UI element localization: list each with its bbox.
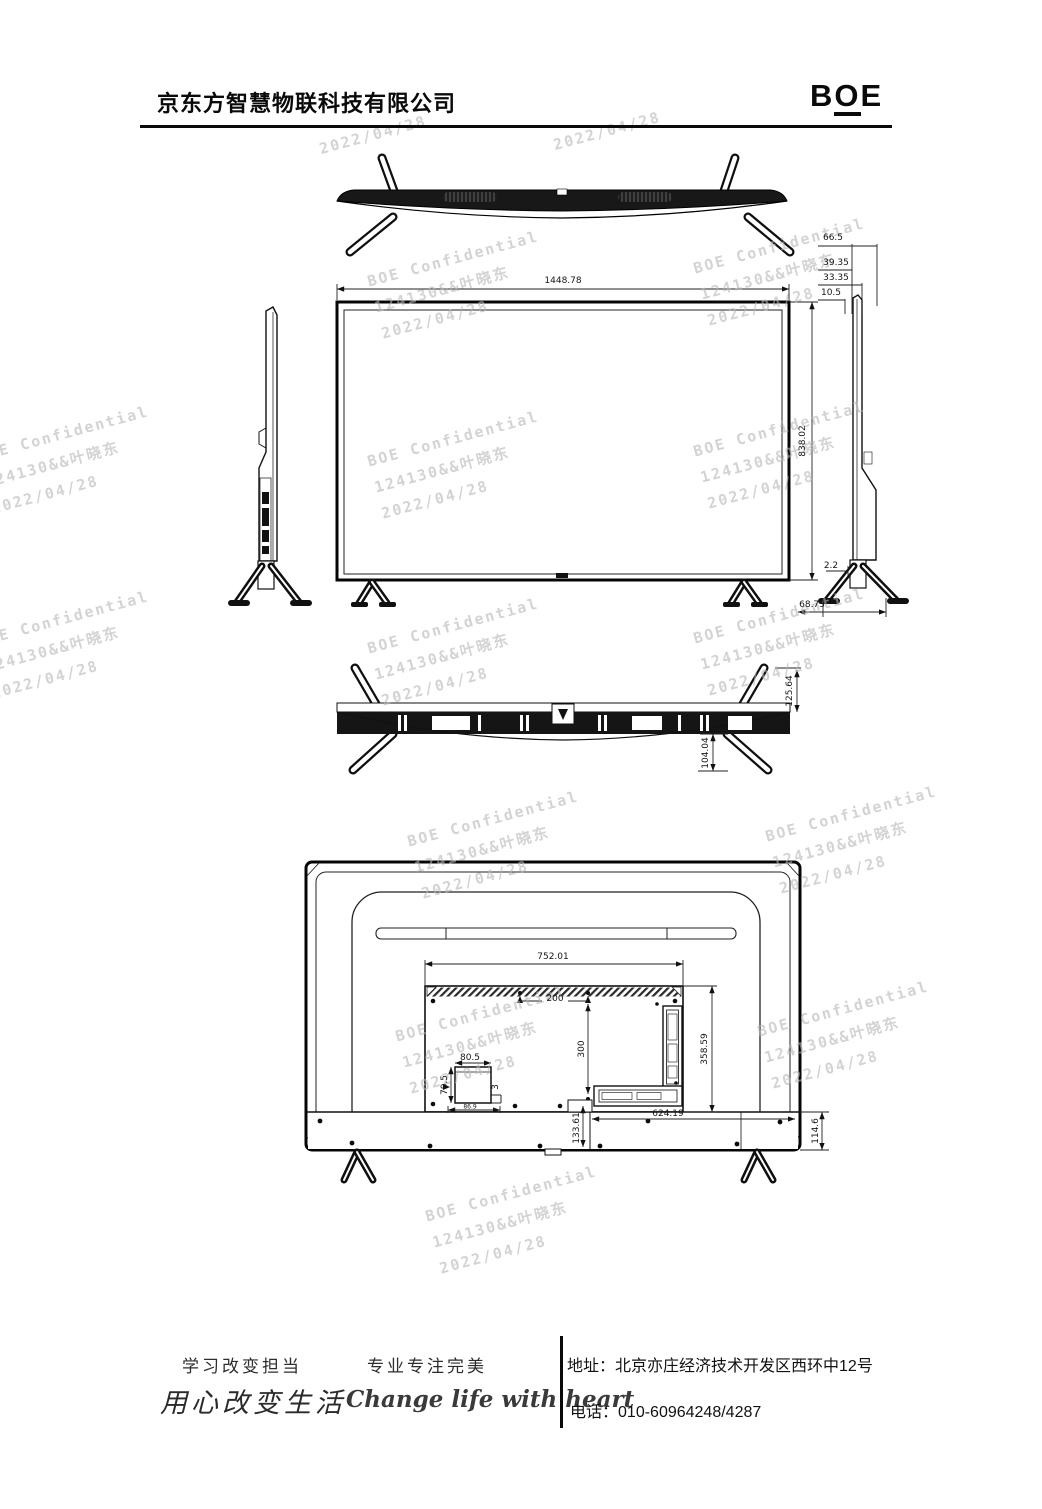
dim-front-height: 838.02: [798, 425, 808, 457]
dim-jack-step: 3: [491, 1084, 501, 1090]
phone-label: 电话：: [570, 1404, 618, 1421]
front-view: [337, 302, 789, 607]
technical-drawing: [0, 0, 1042, 1509]
phone-value: 010-60964248/4287: [618, 1404, 761, 1421]
power-jack-box: [455, 1067, 491, 1103]
base-strip: [308, 1112, 798, 1149]
dim-front-width: 1448.78: [544, 276, 581, 286]
address-label: 地址：: [567, 1358, 615, 1375]
dim-bottom-leg-drop: 104.04: [701, 737, 711, 769]
handle-slot: [376, 928, 736, 939]
address-value: 北京亦庄经济技术开发区西环中12号: [615, 1358, 873, 1375]
logo-letter-o: O: [834, 80, 860, 116]
dim-base-span: 624.19: [652, 1109, 684, 1119]
dim-base-offset: 133.61: [572, 1112, 582, 1144]
logo-letter-e: E: [861, 78, 884, 113]
boe-logo: BOE: [810, 78, 883, 116]
dim-bottom-leg-span: 125.64: [785, 675, 795, 707]
footer-divider: [560, 1336, 563, 1428]
slogan-study: 学习改变担当: [182, 1352, 302, 1377]
dim-jack-offset: 86.9: [463, 1104, 476, 1111]
dim-jack-box-width: 80.5: [460, 1053, 480, 1063]
dim-rear-panel-height: 358.59: [700, 1033, 710, 1065]
side-view-right: [818, 295, 909, 604]
dim-vesa-vertical: 300: [577, 1040, 587, 1057]
top-view: [337, 158, 790, 252]
dim-stand-depth: 68.73: [799, 600, 825, 610]
logo-letter-b: B: [810, 78, 834, 113]
slogan-professional: 专业专注完美: [367, 1352, 487, 1377]
page: 京东方智慧物联科技有限公司 BOE: [0, 0, 1042, 1509]
dim-edge-3: 33.35: [823, 273, 849, 283]
phone-line: 电话：010-60964248/4287: [570, 1398, 761, 1422]
connector-panel: [663, 1006, 682, 1088]
dim-vesa-horizontal: 200: [546, 994, 563, 1004]
dim-rear-panel-width: 752.01: [537, 952, 569, 962]
dim-edge-4: 10.5: [821, 288, 841, 298]
dim-base-height: 114.6: [811, 1118, 821, 1144]
bottom-view: [337, 668, 790, 770]
side-view-left: [228, 307, 312, 606]
vesa-hole: [518, 991, 522, 995]
address-line: 地址：北京亦庄经济技术开发区西环中12号: [567, 1352, 873, 1376]
vesa-hole: [586, 991, 590, 995]
vent-grille: [443, 192, 497, 202]
dim-gap: 2.2: [824, 561, 838, 571]
header-rule: [140, 125, 892, 128]
slogan-script-cn: 用心改变生活: [160, 1381, 346, 1420]
rear-view: [306, 862, 800, 1180]
company-name: 京东方智慧物联科技有限公司: [157, 86, 456, 118]
dim-edge-1: 66.5: [823, 233, 843, 243]
vent-grille: [618, 192, 672, 202]
dim-edge-2: 39.35: [823, 258, 849, 268]
dim-jack-box-height: 70.5: [440, 1075, 450, 1095]
